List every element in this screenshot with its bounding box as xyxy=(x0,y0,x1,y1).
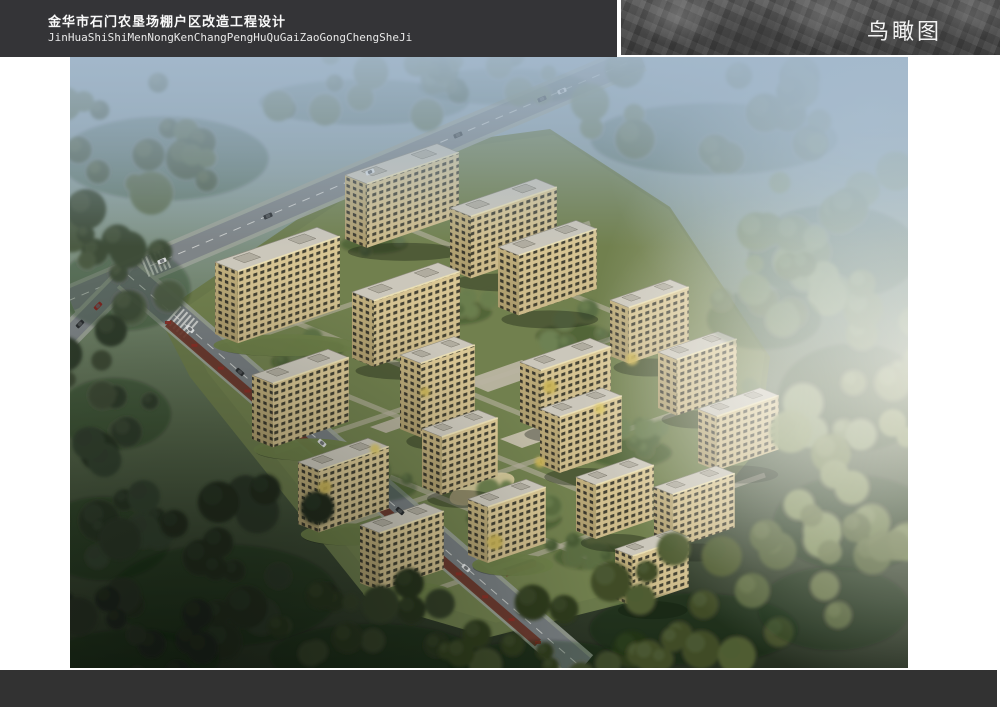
project-title-pinyin: JinHuaShiShiMenNongKenChangPengHuQuGaiZa… xyxy=(48,31,412,44)
footer-bar xyxy=(0,670,997,707)
aerial-rendering xyxy=(70,57,908,668)
header-bar: 金华市石门农垦场棚户区改造工程设计 JinHuaShiShiMenNongKen… xyxy=(0,0,617,57)
view-type-label: 鸟瞰图 xyxy=(867,14,942,46)
rendering-svg xyxy=(70,57,908,668)
project-title-chinese: 金华市石门农垦场棚户区改造工程设计 xyxy=(48,11,286,30)
relief-sculpture-banner: 鸟瞰图 xyxy=(621,0,1000,55)
